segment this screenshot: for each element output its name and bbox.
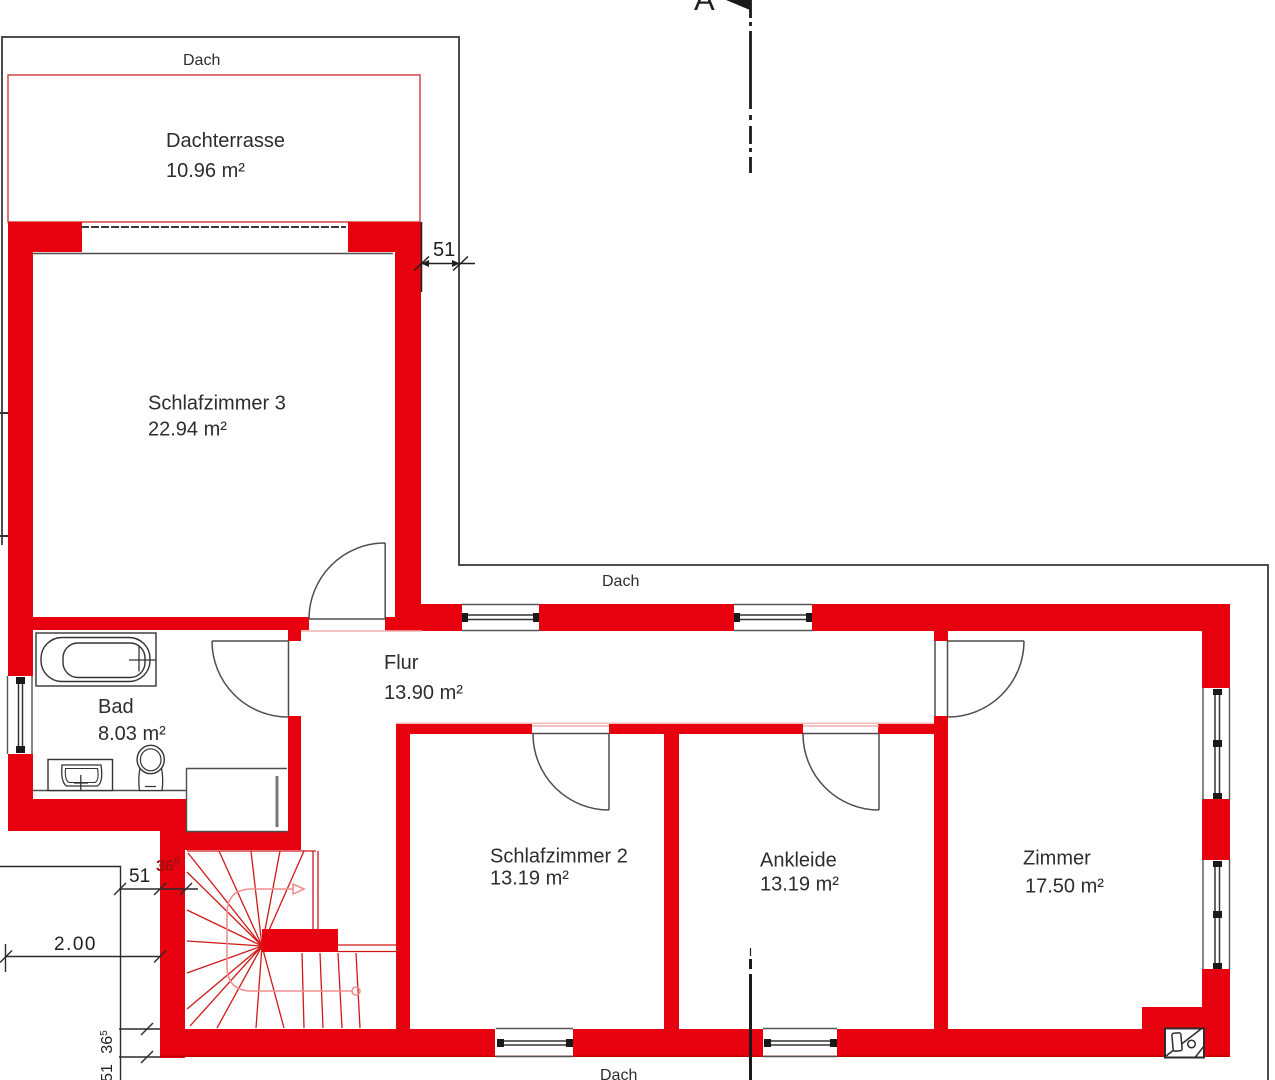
- svg-text:Dach: Dach: [602, 573, 639, 590]
- svg-text:Flur: Flur: [384, 652, 419, 674]
- svg-text:13.19 m²: 13.19 m²: [490, 868, 569, 890]
- svg-text:Dach: Dach: [183, 52, 220, 69]
- svg-text:8.03 m²: 8.03 m²: [98, 723, 166, 745]
- svg-text:A: A: [694, 0, 715, 17]
- svg-text:Dachterrasse: Dachterrasse: [166, 130, 285, 152]
- svg-text:Bad: Bad: [98, 696, 134, 718]
- svg-text:13.19 m²: 13.19 m²: [760, 874, 839, 896]
- svg-text:51: 51: [129, 866, 150, 887]
- svg-text:Schlafzimmer 2: Schlafzimmer 2: [490, 846, 628, 868]
- svg-text:Dach: Dach: [600, 1067, 637, 1080]
- svg-text:Ankleide: Ankleide: [760, 850, 837, 872]
- svg-text:51: 51: [99, 1064, 116, 1080]
- svg-text:10.96 m²: 10.96 m²: [166, 160, 245, 182]
- svg-text:17.50 m²: 17.50 m²: [1025, 876, 1104, 898]
- svg-text:Zimmer: Zimmer: [1023, 848, 1091, 870]
- svg-text:2.00: 2.00: [54, 934, 97, 955]
- svg-text:51: 51: [433, 239, 455, 261]
- svg-text:22.94 m²: 22.94 m²: [148, 419, 227, 441]
- svg-text:Schlafzimmer 3: Schlafzimmer 3: [148, 393, 286, 415]
- svg-text:13.90 m²: 13.90 m²: [384, 682, 463, 704]
